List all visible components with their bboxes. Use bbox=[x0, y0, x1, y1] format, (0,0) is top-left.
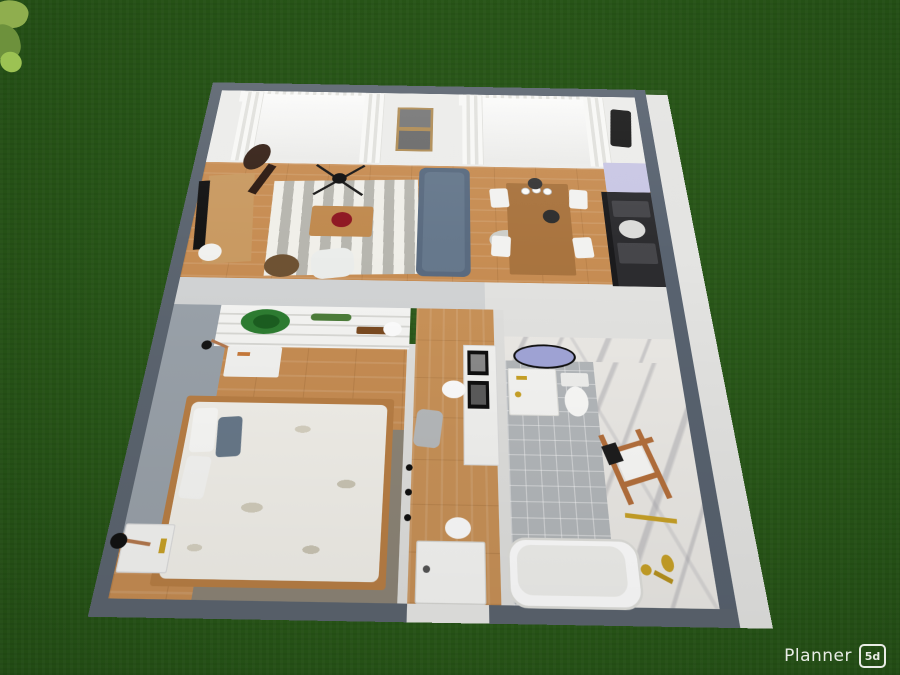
stove-grate-1 bbox=[611, 201, 650, 218]
ceiling-light-1 bbox=[442, 380, 466, 398]
pillow-blue bbox=[215, 416, 243, 458]
render-canvas: Planner 5d bbox=[0, 0, 900, 675]
dining-chair-1 bbox=[489, 188, 510, 207]
planner5d-logo-icon: 5d bbox=[859, 644, 886, 668]
framed-picture-top bbox=[397, 107, 434, 129]
shelf-plants-row bbox=[310, 313, 351, 321]
stove-grate-2 bbox=[617, 243, 658, 264]
dining-chair-4 bbox=[572, 237, 595, 258]
watermark-brand-text: Planner bbox=[784, 646, 852, 666]
dining-chair-3 bbox=[569, 189, 588, 209]
entry-door-step bbox=[407, 604, 490, 624]
foliage-blob-3 bbox=[0, 48, 26, 76]
framed-picture-bottom bbox=[395, 129, 433, 152]
hall-gray-chair bbox=[412, 408, 443, 448]
nightstand bbox=[115, 523, 176, 573]
tableware-cup-3 bbox=[543, 188, 553, 195]
pendant-lamp-1 bbox=[527, 178, 542, 190]
hall-picture-1-photo bbox=[471, 354, 486, 371]
toilet-tank bbox=[560, 373, 589, 387]
curtain-right-a bbox=[462, 95, 484, 165]
white-armchair bbox=[310, 247, 355, 280]
window-glass-right bbox=[479, 98, 591, 164]
sofa-cushions bbox=[422, 172, 465, 272]
pendant-lamp-2 bbox=[542, 210, 560, 224]
floor-plan bbox=[88, 82, 773, 628]
dining-table bbox=[506, 183, 576, 276]
bathtub-inner bbox=[516, 545, 629, 597]
entry-door-handle bbox=[423, 565, 430, 573]
vanity-gold-faucet bbox=[516, 376, 527, 380]
kitchen-bath-wall-block bbox=[485, 282, 675, 339]
fridge bbox=[603, 163, 651, 193]
bedroom-desk bbox=[223, 346, 282, 377]
tableware-cup-1 bbox=[521, 188, 531, 195]
desk-decor-marks bbox=[237, 352, 250, 356]
pillow-white-1 bbox=[188, 408, 218, 453]
ceiling-light-2 bbox=[445, 517, 471, 539]
watermark: Planner 5d bbox=[784, 644, 886, 668]
dining-chair-2 bbox=[491, 235, 511, 257]
vanity-gold-knob bbox=[515, 391, 522, 397]
hall-picture-2-photo bbox=[471, 385, 486, 405]
wall-coat-mirror bbox=[610, 109, 631, 148]
